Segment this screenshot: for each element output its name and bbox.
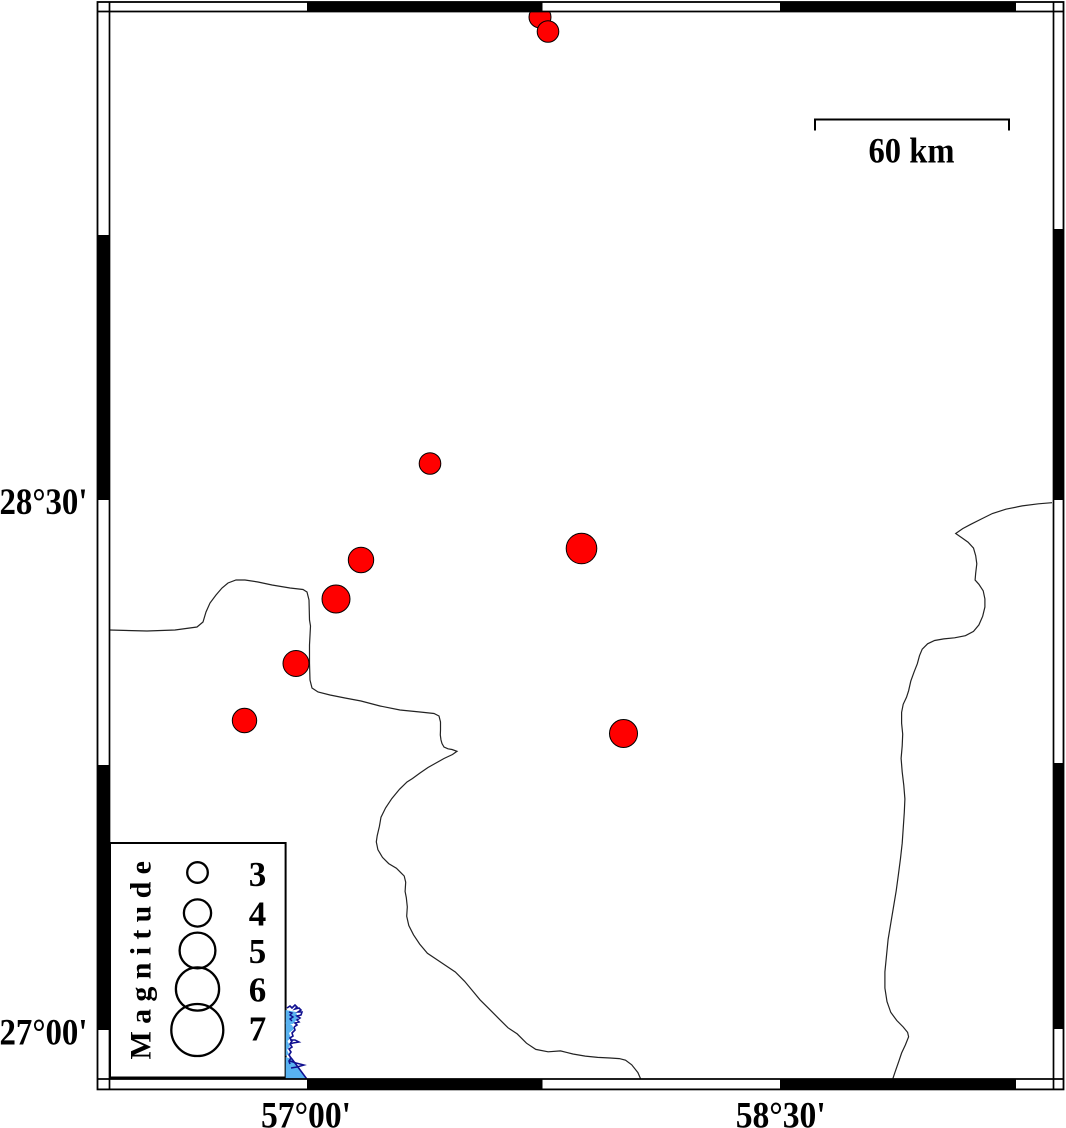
svg-text:27°00': 27°00' xyxy=(0,1011,88,1052)
svg-text:60 km: 60 km xyxy=(869,131,955,171)
svg-text:5: 5 xyxy=(249,932,267,971)
svg-text:58°30': 58°30' xyxy=(736,1095,826,1128)
svg-text:3: 3 xyxy=(249,855,267,894)
svg-text:Magnitude: Magnitude xyxy=(125,854,158,1060)
svg-text:7: 7 xyxy=(249,1010,267,1049)
svg-text:4: 4 xyxy=(249,895,267,934)
svg-text:6: 6 xyxy=(249,971,267,1010)
svg-text:57°00': 57°00' xyxy=(261,1095,351,1128)
svg-text:28°30': 28°30' xyxy=(0,481,88,522)
